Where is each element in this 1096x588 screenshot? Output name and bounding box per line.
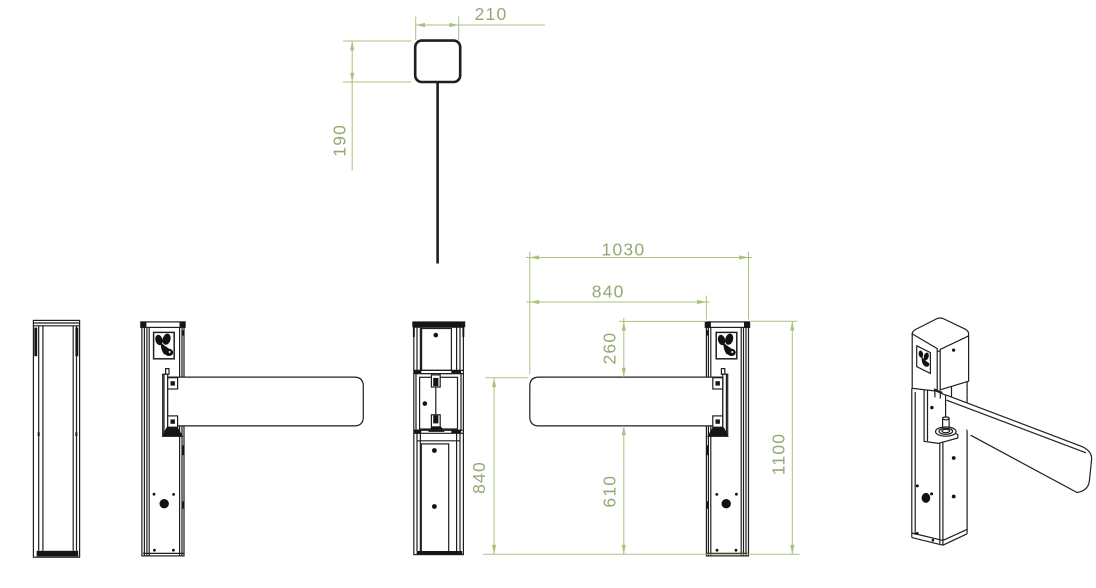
svg-text:610: 610 bbox=[599, 475, 619, 508]
svg-text:260: 260 bbox=[599, 332, 619, 365]
svg-text:190: 190 bbox=[329, 124, 349, 157]
svg-text:210: 210 bbox=[475, 4, 508, 24]
svg-text:840: 840 bbox=[469, 461, 489, 494]
svg-text:840: 840 bbox=[592, 281, 625, 301]
svg-text:1030: 1030 bbox=[602, 239, 646, 259]
svg-text:1100: 1100 bbox=[769, 433, 789, 475]
